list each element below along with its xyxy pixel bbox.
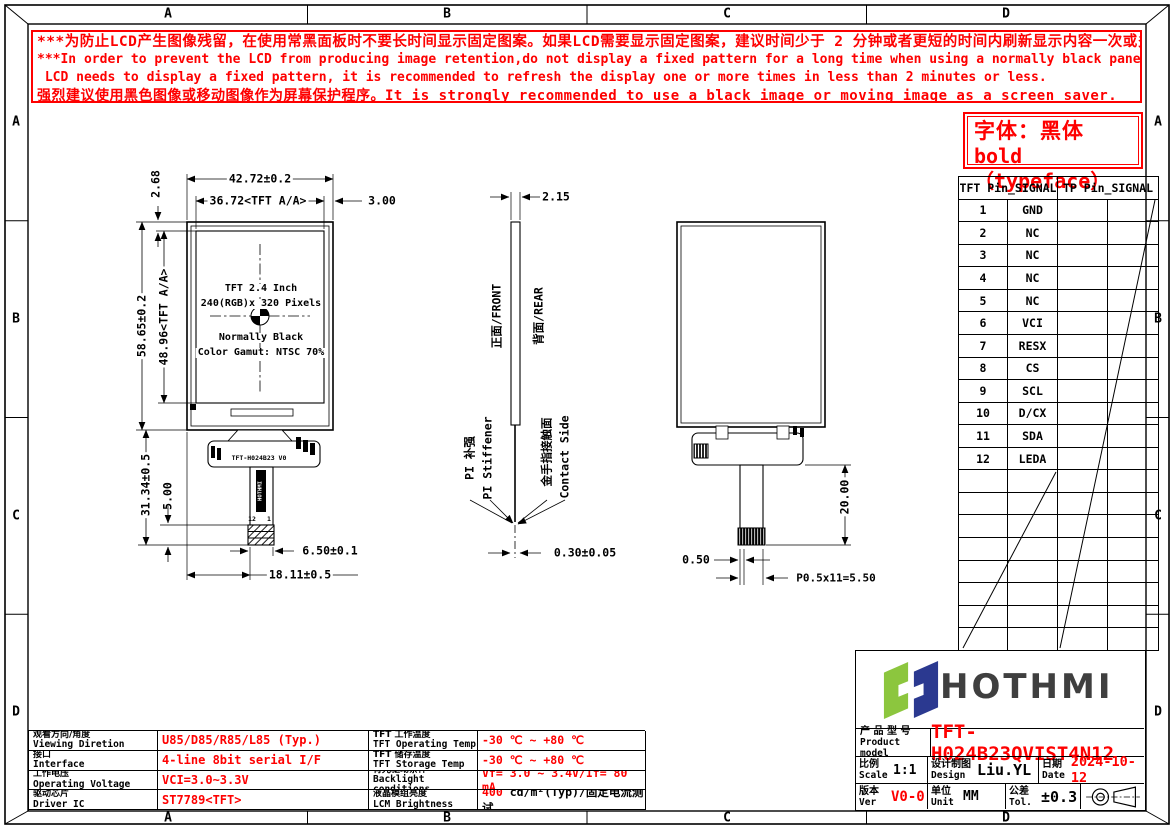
pi-stiffener-en-label: PI Stiffener	[482, 416, 494, 499]
side-rear-label: 背面/REAR	[533, 287, 545, 345]
contact-side-en-label: Contact Side	[559, 415, 571, 498]
dim-tail-center: 18.11±0.5	[267, 569, 333, 581]
dim-thickness: 2.15	[540, 191, 572, 203]
fpc-logo-text: HOTHMI	[258, 481, 264, 501]
drawing-sheet: A B C D A B C D A B C D A B C D ***为防止LC…	[0, 0, 1174, 826]
fpc-pin-12-label: 12	[248, 516, 256, 523]
panel-gamut-label: Color Gamut: NTSC 70%	[196, 348, 326, 358]
dim-right-margin: 3.00	[368, 195, 396, 207]
side-front-label: 正面/FRONT	[491, 284, 503, 349]
dim-module-width: 42.72±0.2	[227, 173, 293, 185]
dim-module-height: 58.65±0.2	[136, 293, 148, 359]
contact-side-cn-label: 金手指接触面	[541, 418, 553, 487]
dim-aa-width: 36.72<TFT A/A>	[208, 195, 309, 207]
dim-wall: 0.50	[682, 554, 710, 566]
fpc-part-number: TFT-H024B23 V0	[232, 455, 287, 462]
panel-resolution-label: 240(RGB)x 320 Pixels	[199, 299, 323, 309]
drawing-labels: 42.72±0.2 36.72<TFT A/A> 3.00 2.68 58.65…	[0, 0, 1174, 826]
dim-fpc-thickness: 0.30±0.05	[552, 547, 618, 559]
panel-mode-label: Normally Black	[217, 333, 305, 343]
dim-tail-length: 20.00	[839, 478, 851, 517]
fpc-pin-1-label: 1	[267, 516, 271, 523]
pi-stiffener-cn-label: PI 补强	[464, 436, 476, 480]
dim-pitch: P0.5x11=5.50	[796, 573, 875, 584]
dim-tail-width: 6.50±0.1	[302, 545, 357, 557]
dim-aa-height: 48.96<TFT A/A>	[158, 267, 170, 368]
dim-fpc-length: 31.34±0.5	[140, 452, 152, 518]
dim-tail-offset: 5.00	[162, 482, 174, 510]
panel-size-label: TFT 2.4 Inch	[223, 284, 299, 294]
dim-top-margin: 2.68	[150, 170, 162, 198]
